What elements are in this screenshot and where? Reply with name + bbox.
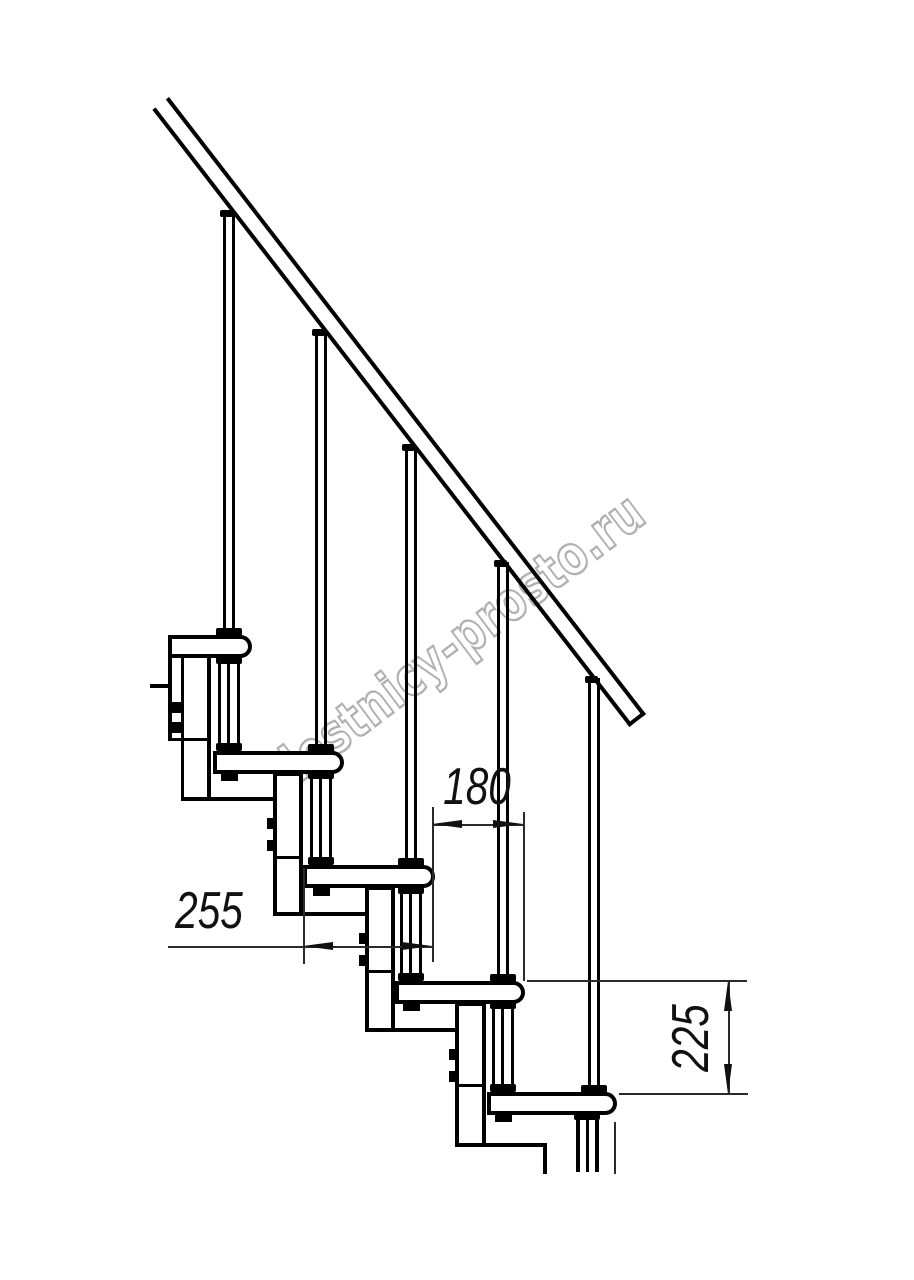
wall-bracket-stub xyxy=(150,684,169,688)
support-module-4 xyxy=(455,1002,486,1147)
support-tube-1-axis xyxy=(227,657,230,753)
support-tube-5-axis xyxy=(586,1113,589,1172)
tread-3 xyxy=(303,865,435,888)
support-tube-5 xyxy=(576,1113,580,1172)
support-module-1-body xyxy=(181,656,211,801)
tread-4 xyxy=(395,981,525,1004)
tube-foot-icon xyxy=(216,743,242,751)
support-tube-4-axis xyxy=(501,1002,504,1094)
dim-arrow-icon xyxy=(724,1064,732,1094)
dim-180-extension-line xyxy=(523,812,525,981)
dim-arrow-icon xyxy=(303,942,333,950)
support-module-3 xyxy=(365,886,395,1032)
module-base-plate xyxy=(455,1143,546,1147)
support-tube-3-axis xyxy=(409,887,412,983)
module-bolt-icon xyxy=(172,722,182,733)
module-bolt-icon xyxy=(172,702,182,713)
dim-225-extension-line xyxy=(527,980,747,982)
baluster-foot-icon xyxy=(308,744,334,752)
tube-flange-icon xyxy=(490,1002,516,1009)
support-tube-5 xyxy=(595,1113,599,1172)
tube-flange-icon xyxy=(308,772,334,779)
module-bolt-icon xyxy=(449,1049,458,1060)
baluster-1 xyxy=(223,212,235,636)
baluster-3 xyxy=(405,446,417,865)
baluster-foot-icon xyxy=(490,974,516,982)
support-tube-2-axis xyxy=(319,772,322,867)
module-bolt-icon xyxy=(267,840,276,851)
rail-connector-icon xyxy=(585,676,598,683)
tube-flange-icon xyxy=(216,657,242,664)
rail-connector-icon xyxy=(220,210,233,217)
module-joint-line xyxy=(369,970,391,973)
module-base-plate xyxy=(181,797,273,801)
dim-225-label: 225 xyxy=(661,1004,721,1072)
module-base-plate xyxy=(365,1028,456,1032)
bolt-icon xyxy=(403,1002,420,1011)
tread-2 xyxy=(213,751,344,774)
module-joint-line xyxy=(459,1084,482,1087)
tube-flange-icon xyxy=(398,887,424,894)
rail-connector-icon xyxy=(494,560,507,567)
tread-5 xyxy=(487,1092,617,1115)
bolt-icon xyxy=(313,887,330,896)
rail-connector-icon xyxy=(312,329,325,336)
module-bolt-icon xyxy=(267,818,276,829)
tube-foot-icon xyxy=(398,973,424,981)
dim-255-label: 255 xyxy=(175,881,243,941)
dim-180-extension-line xyxy=(432,807,434,962)
rail-connector-icon xyxy=(402,444,415,451)
dim-arrow-icon xyxy=(402,942,432,950)
baluster-5 xyxy=(588,678,600,1092)
baluster-foot-icon xyxy=(216,628,242,636)
bolt-icon xyxy=(221,772,238,781)
module-base-plate xyxy=(273,912,367,916)
dim-arrow-icon xyxy=(724,981,732,1011)
module-joint-line xyxy=(277,856,299,859)
support-module-5-edge xyxy=(543,1143,547,1174)
projection-line xyxy=(614,1122,616,1174)
bolt-icon xyxy=(495,1113,512,1122)
baluster-foot-icon xyxy=(581,1085,607,1093)
module-bolt-icon xyxy=(359,955,368,966)
support-module-2 xyxy=(273,772,303,916)
tube-flange-icon xyxy=(574,1113,600,1120)
tread-1 xyxy=(168,635,252,658)
tube-foot-icon xyxy=(308,857,334,865)
dim-arrow-icon xyxy=(493,820,523,828)
dim-180-label: 180 xyxy=(443,757,511,817)
baluster-2 xyxy=(315,331,327,751)
dim-arrow-icon xyxy=(432,820,462,828)
tube-foot-icon xyxy=(490,1084,516,1092)
staircase-technical-drawing: lestnicy-prosto.ru xyxy=(0,0,914,1280)
dim-255-line xyxy=(168,946,432,948)
module-bolt-icon xyxy=(449,1071,458,1082)
module-bolt-icon xyxy=(359,933,368,944)
baluster-foot-icon xyxy=(398,858,424,866)
